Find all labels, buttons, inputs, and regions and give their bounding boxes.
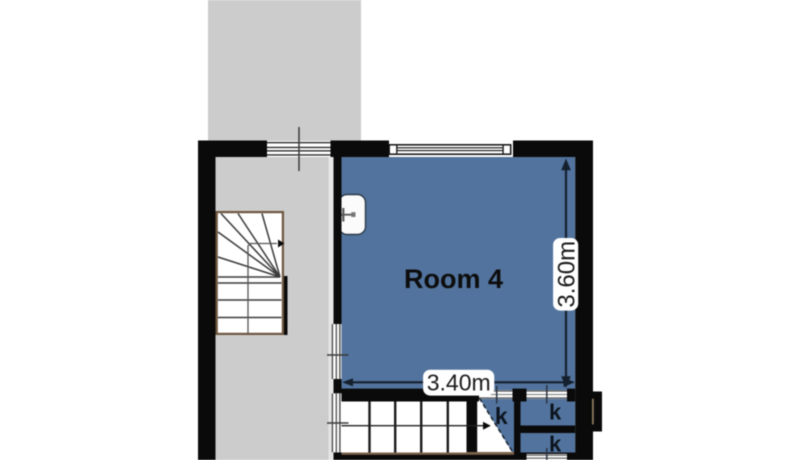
svg-text:k: k bbox=[549, 400, 562, 425]
svg-text:3.60m: 3.60m bbox=[554, 241, 581, 308]
svg-text:k: k bbox=[549, 432, 562, 457]
svg-text:Room 4: Room 4 bbox=[404, 264, 503, 294]
svg-text:3.40m: 3.40m bbox=[427, 369, 491, 395]
svg-text:k: k bbox=[495, 403, 508, 429]
